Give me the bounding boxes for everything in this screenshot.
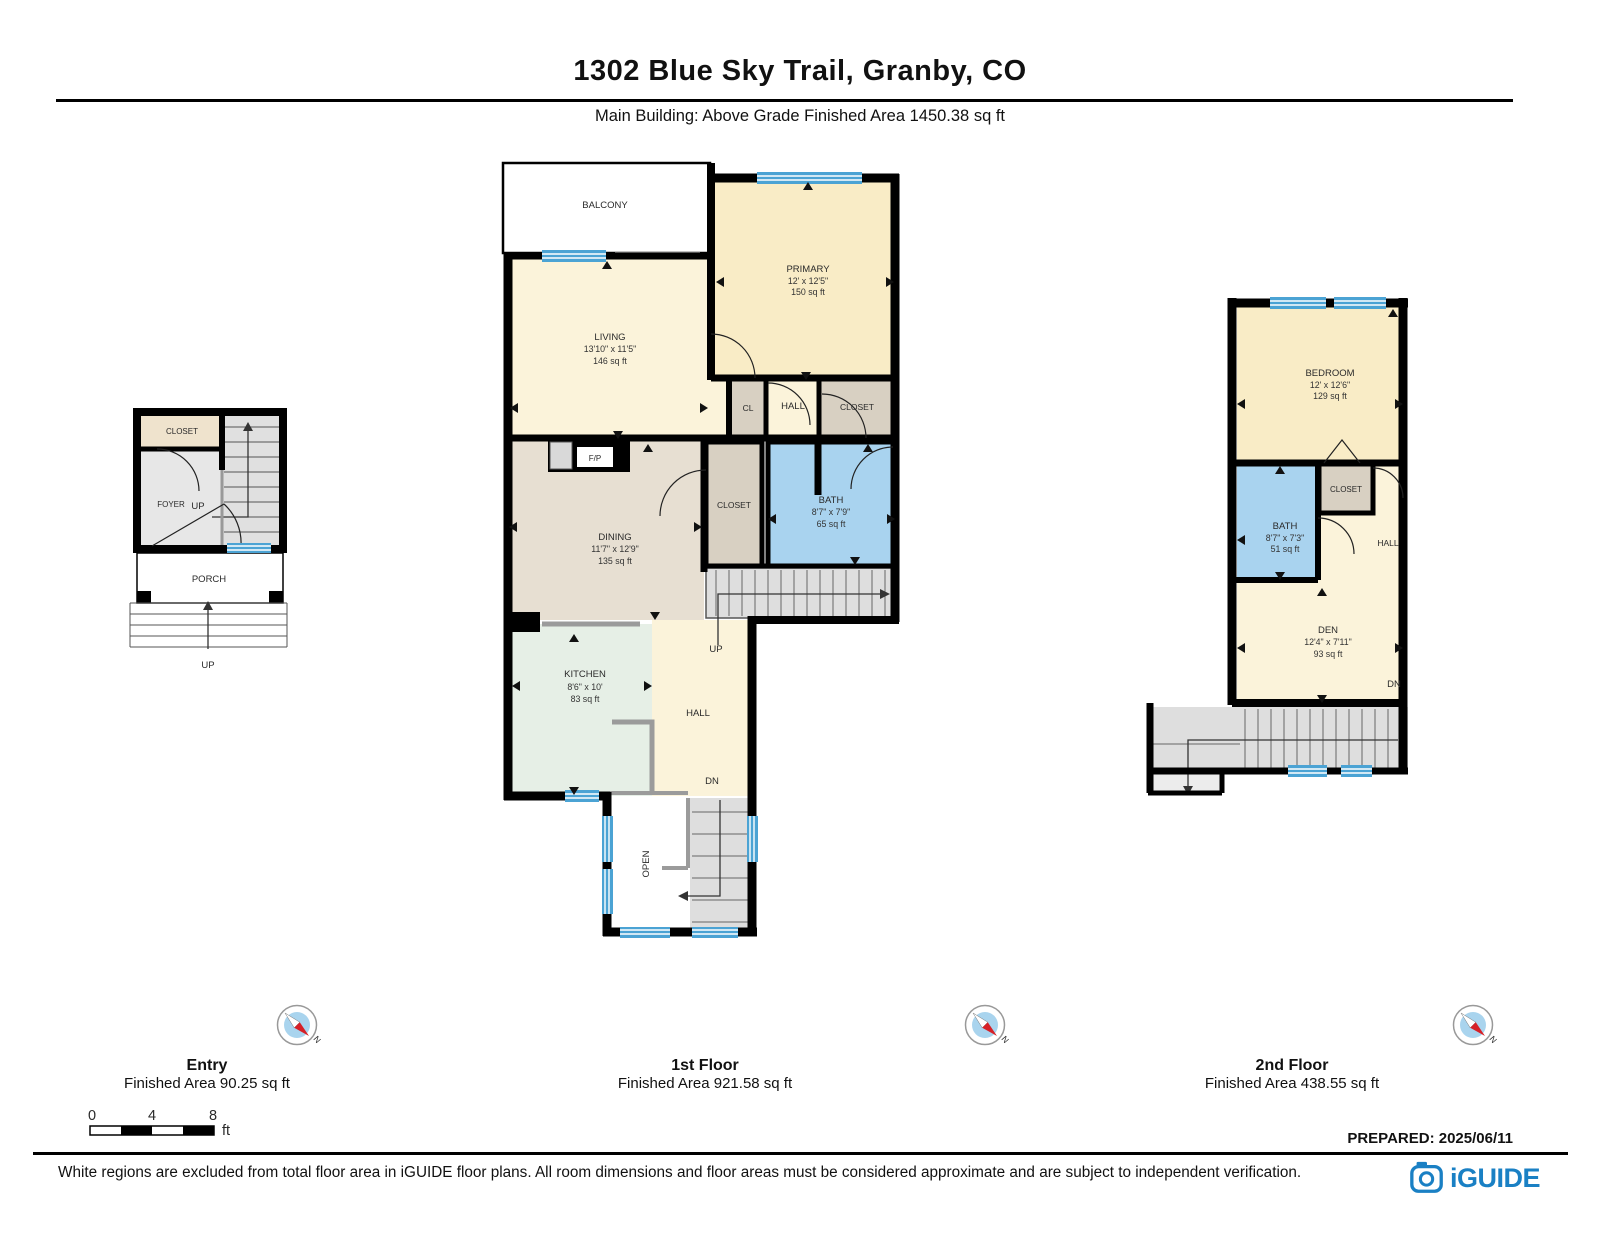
entry-up-stairs-label: UP [191,501,204,512]
compass-entry: N [278,1006,324,1045]
second-floor-area: Finished Area 438.55 sq ft [1205,1075,1379,1093]
entry-closet-label: CLOSET [166,427,198,436]
first-floor-area: Finished Area 921.58 sq ft [618,1075,792,1093]
floorplan-canvas: CLOSET FOYER UP PORCH UP [0,0,1600,1236]
scale-unit: ft [222,1123,230,1139]
up-label: UP [709,644,722,655]
bath1-area: 65 sq ft [817,519,846,529]
first-floor-plan: BALCONY PRIMARY 12' x 12'5" 150 sq ft LI… [503,163,899,938]
footer-divider [33,1152,1568,1155]
dining-dims: 11'7" x 12'9" [591,544,639,554]
cl-label: CL [743,403,754,413]
bath2-area: 51 sq ft [1271,544,1300,554]
scale-0: 0 [88,1108,96,1124]
entry-window [227,543,271,553]
first-floor-caption: 1st Floor Finished Area 921.58 sq ft [618,1056,792,1093]
kitchen-area: 83 sq ft [571,694,600,704]
second-floor-caption: 2nd Floor Finished Area 438.55 sq ft [1205,1056,1379,1093]
hall2-label: HALL [1377,538,1399,548]
entry-porch-label: PORCH [192,574,226,585]
entry-foyer-label: FOYER [157,500,185,509]
closet-mid-label: CLOSET [717,500,751,510]
dining-area: 135 sq ft [598,556,632,566]
open-label: OPEN [641,850,652,877]
hall-bottom-label: HALL [686,708,710,719]
entry-caption: Entry Finished Area 90.25 sq ft [124,1056,290,1093]
second-floor-plan: BEDROOM 12' x 12'6" 129 sq ft CLOSET BAT… [1148,297,1408,795]
living-dims: 13'10" x 11'5" [584,344,637,354]
bath1-name: BATH [819,495,844,506]
living-area: 146 sq ft [593,356,627,366]
dn2-label: DN [1387,679,1401,690]
primary-dims: 12' x 12'5" [788,276,828,286]
iguide-brand-text: iGUIDE [1450,1163,1540,1194]
primary-name: PRIMARY [786,264,830,275]
entry-area: Finished Area 90.25 sq ft [124,1075,290,1093]
first-floor-name: 1st Floor [618,1056,792,1075]
fireplace-label: F/P [589,454,601,463]
den-area: 93 sq ft [1314,649,1343,659]
bedroom-dims: 12' x 12'6" [1310,380,1350,390]
bath2-name: BATH [1273,521,1298,532]
scale-4: 4 [148,1108,156,1124]
hall-top-label: HALL [781,401,805,412]
entry-plan: CLOSET FOYER UP PORCH UP [130,412,287,671]
floorplan-page: 1302 Blue Sky Trail, Granby, CO Main Bui… [0,0,1600,1236]
bedroom-area: 129 sq ft [1313,391,1347,401]
den-dims: 12'4" x 7'11" [1304,637,1352,647]
dn-label: DN [705,776,719,787]
entry-up-steps-label: UP [201,660,214,671]
bedroom-name: BEDROOM [1305,368,1354,379]
compass-second-floor: N [1454,1006,1500,1045]
disclaimer-text: White regions are excluded from total fl… [58,1164,1358,1182]
kitchen-name: KITCHEN [564,669,606,680]
closet-top-label: CLOSET [840,402,874,412]
compass-first-floor: N [966,1006,1012,1045]
iguide-camera-icon [1408,1160,1446,1196]
kitchen-dims: 8'6" x 10' [567,682,603,692]
dining-name: DINING [598,532,631,543]
scale-bar: 0 4 8 ft [88,1108,230,1139]
living-name: LIVING [594,332,625,343]
den-name: DEN [1318,625,1338,636]
closet2-label: CLOSET [1330,485,1362,494]
prepared-date: PREPARED: 2025/06/11 [1347,1130,1513,1147]
iguide-logo: iGUIDE [1408,1160,1540,1196]
bath2-dims: 8'7" x 7'3" [1266,533,1304,543]
scale-8: 8 [209,1108,217,1124]
primary-area: 150 sq ft [791,287,825,297]
balcony-label: BALCONY [582,200,628,211]
entry-name: Entry [124,1056,290,1075]
second-floor-name: 2nd Floor [1205,1056,1379,1075]
bath1-dims: 8'7" x 7'9" [812,507,850,517]
